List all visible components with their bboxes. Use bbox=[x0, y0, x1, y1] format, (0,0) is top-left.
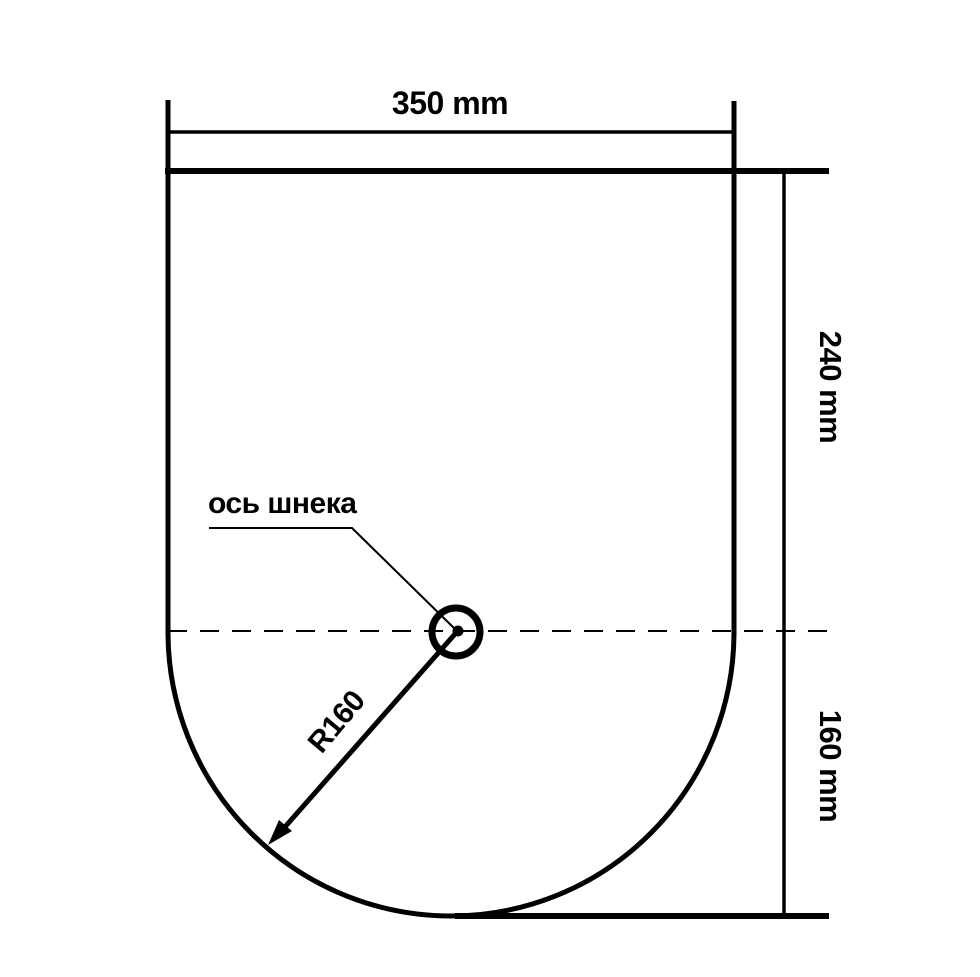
width-dimension-label: 350 mm bbox=[392, 85, 508, 121]
technical-drawing-canvas: 350 mm 240 mm 160 mm ось шнека R160 bbox=[0, 0, 980, 977]
upper-height-dimension-label: 240 mm bbox=[813, 331, 848, 443]
drawing-background bbox=[0, 0, 980, 977]
trough-cross-section-drawing: 350 mm 240 mm 160 mm ось шнека R160 bbox=[0, 0, 980, 977]
auger-axis-label: ось шнека bbox=[208, 487, 357, 520]
lower-height-dimension-label: 160 mm bbox=[813, 710, 848, 822]
